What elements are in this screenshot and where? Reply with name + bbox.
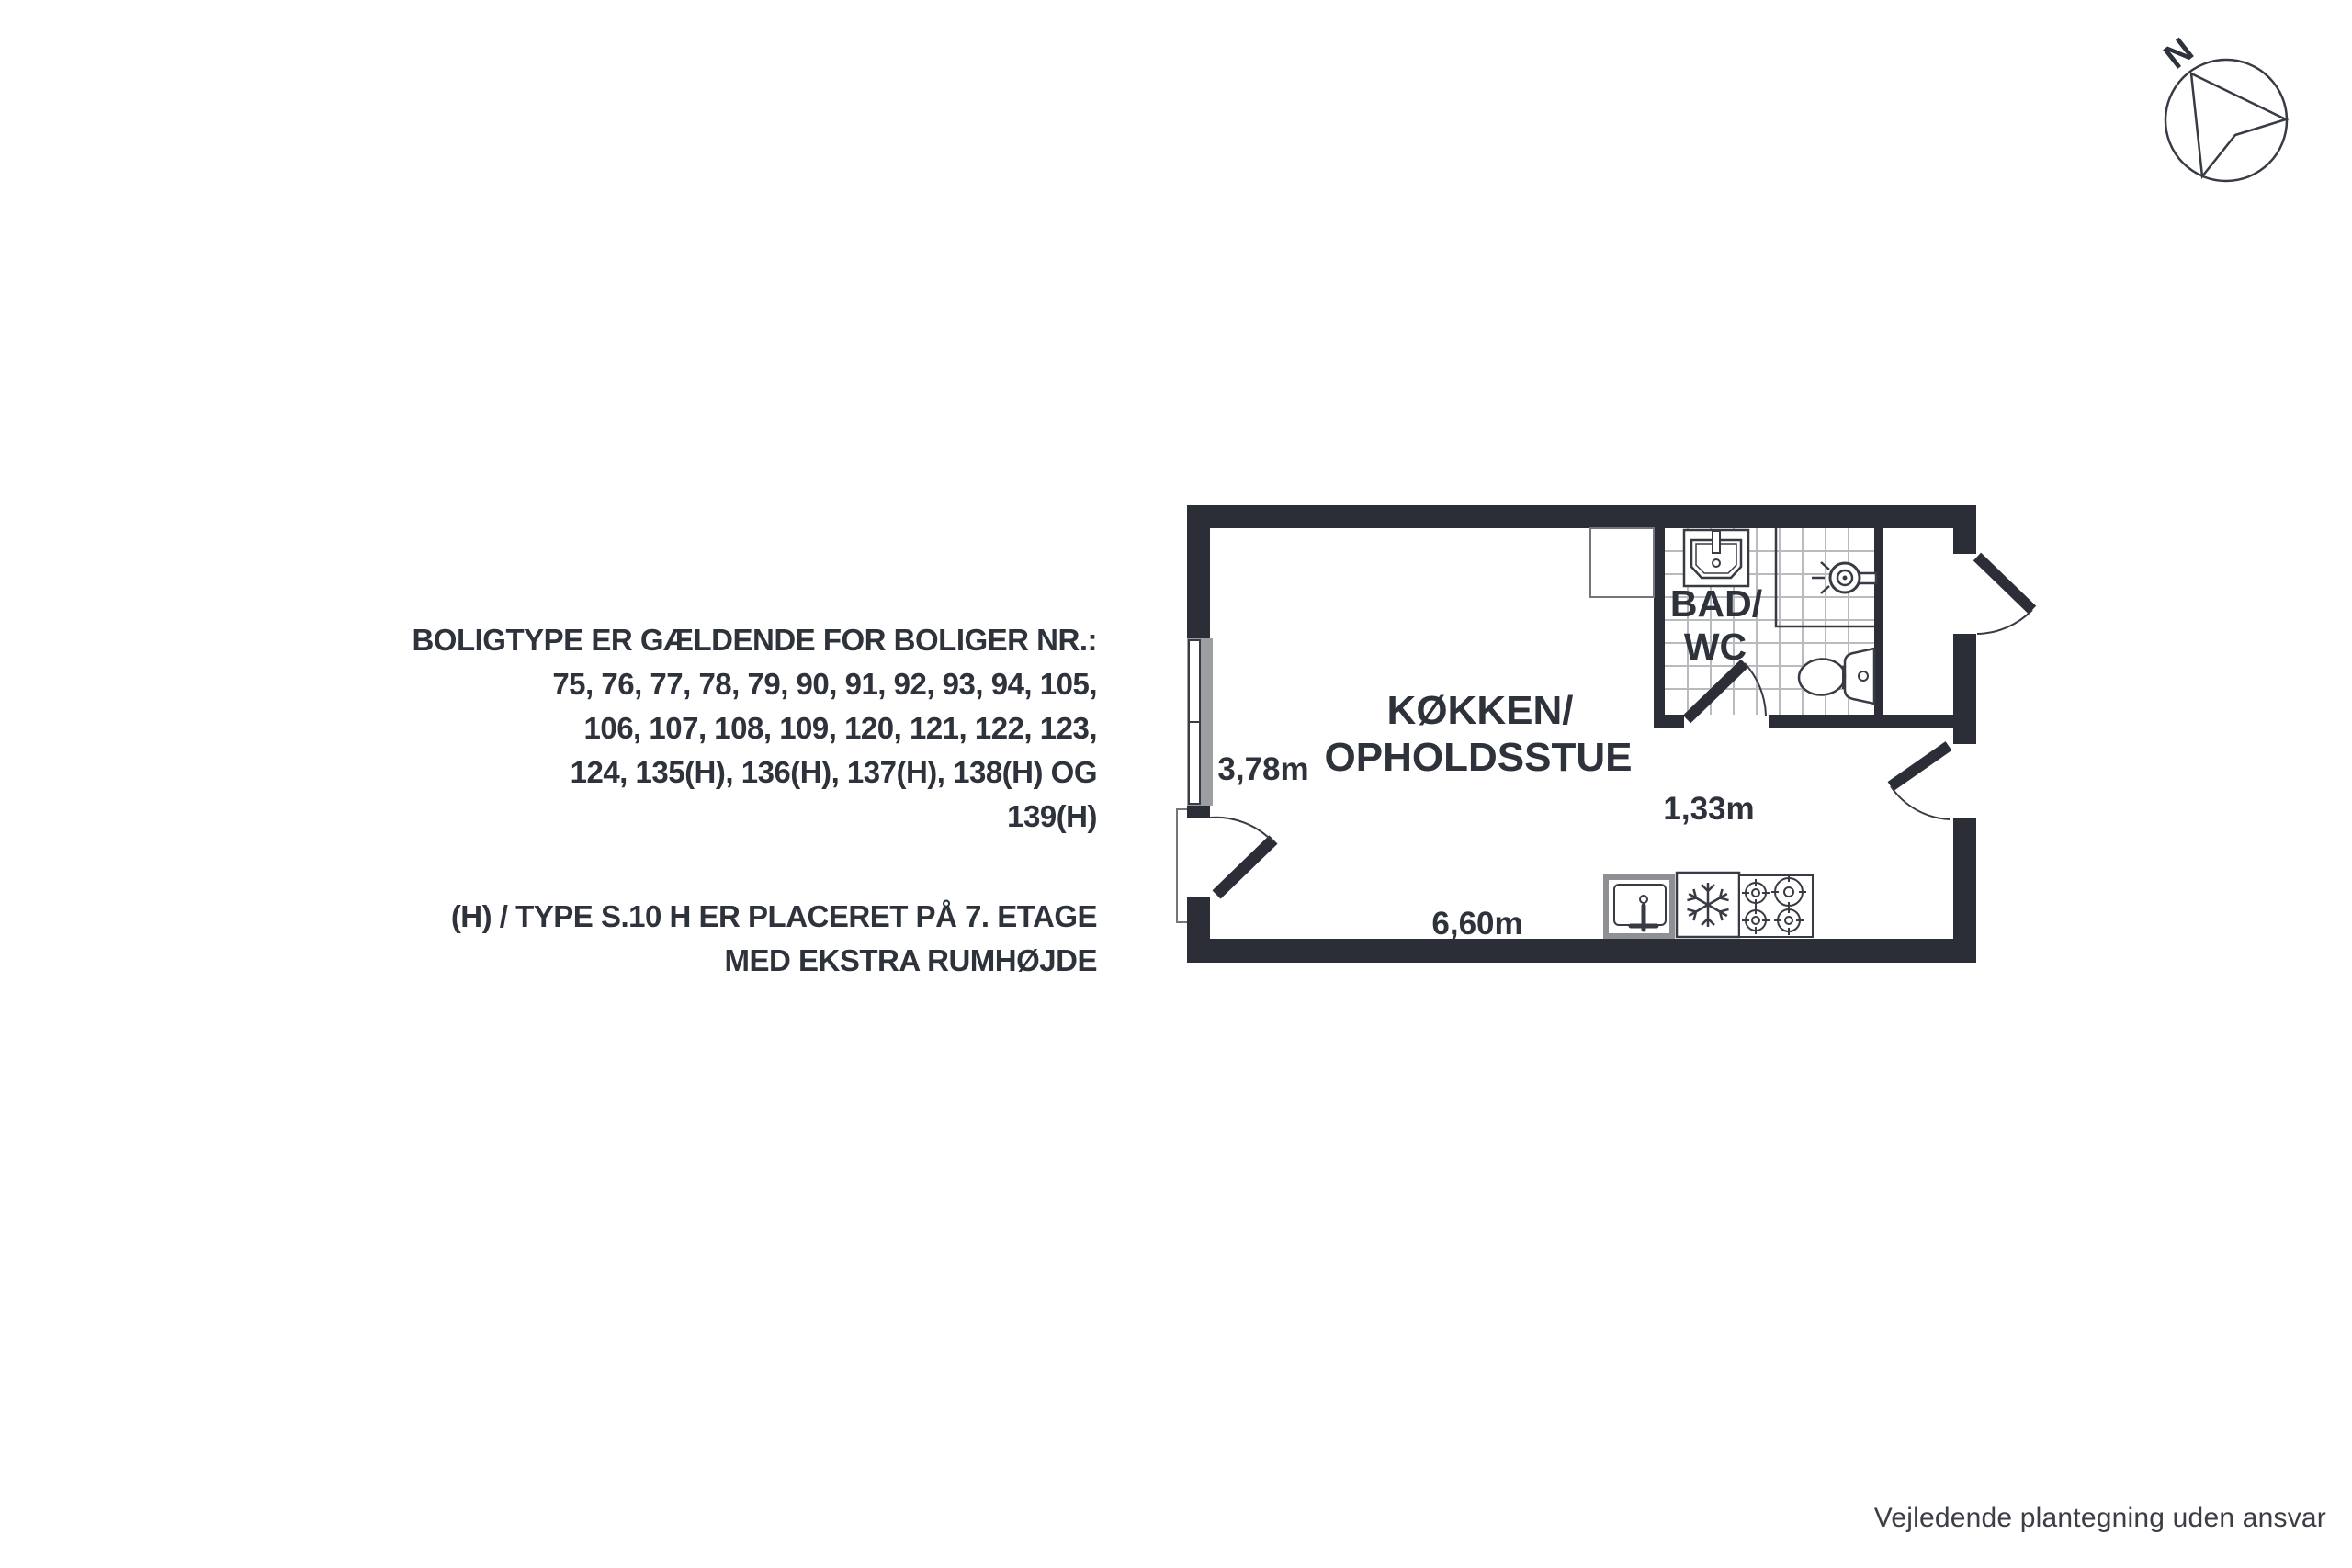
- wall-left-upper: [1187, 505, 1210, 638]
- window: [1187, 638, 1213, 806]
- bath-wall-bottom-right: [1769, 715, 1953, 728]
- note-line: 139(H): [270, 795, 1097, 839]
- bath-wall-bottom-left: [1654, 715, 1684, 728]
- note-line: 75, 76, 77, 78, 79, 90, 91, 92, 93, 94, …: [270, 662, 1097, 706]
- compass-circle: [2165, 60, 2287, 181]
- door-leaf: [1891, 746, 1949, 786]
- sink-drain: [1640, 896, 1647, 903]
- room-label-kitchen-line2: OPHOLDSSTUE: [1325, 738, 1633, 778]
- note-line: BOLIGTYPE ER GÆLDENDE FOR BOLIGER NR.:: [270, 618, 1097, 662]
- door-swing-arc: [1891, 786, 1950, 819]
- note-line: 124, 135(H), 136(H), 137(H), 138(H) OG: [270, 750, 1097, 795]
- note-applies-to: BOLIGTYPE ER GÆLDENDE FOR BOLIGER NR.: 7…: [270, 618, 1097, 839]
- wall-right-upper: [1953, 505, 1976, 554]
- toilet-icon: [1798, 649, 1874, 704]
- interior-door: [1891, 746, 1950, 819]
- kitchen-sink-icon: [1606, 877, 1672, 936]
- bath-sink-icon: [1684, 530, 1748, 586]
- wall-right-lower: [1953, 818, 1976, 963]
- door-swing-arc: [1210, 818, 1273, 842]
- note-line: MED EKSTRA RUMHØJDE: [270, 939, 1097, 983]
- door-leaf: [1216, 840, 1273, 895]
- note-line: 106, 107, 108, 109, 120, 121, 122, 123,: [270, 706, 1097, 750]
- wall-right-middle: [1953, 634, 1976, 744]
- floor-plan-page: N BOLIGTYPE ER GÆLDENDE FOR BOLIGER NR.:…: [0, 0, 2352, 1568]
- wall-bottom: [1187, 939, 1976, 963]
- toilet-flush-button: [1859, 671, 1868, 681]
- note-line: (H) / TYPE S.10 H ER PLACERET PÅ 7. ETAG…: [270, 895, 1097, 939]
- entry-door: [1977, 557, 2032, 634]
- bathroom-door: [1687, 663, 1766, 719]
- shower-spray: [1812, 562, 1829, 593]
- stove-icon: [1739, 874, 1813, 937]
- fridge-icon: [1677, 873, 1739, 937]
- footer-disclaimer: Vejledende plantegning uden ansvar: [1874, 1503, 2326, 1534]
- toilet-bowl: [1798, 658, 1847, 696]
- dimension-room-width: 3,78m: [1217, 753, 1308, 785]
- room-label-bath-line1: BAD/: [1670, 585, 1762, 623]
- wall-top: [1187, 505, 1976, 528]
- door-threshold: [1177, 809, 1187, 922]
- room-label-kitchen-line1: KØKKEN/: [1387, 691, 1574, 731]
- door-leaf: [1977, 557, 2032, 610]
- sink-basin: [1614, 885, 1666, 925]
- bath-wall-left: [1654, 528, 1665, 728]
- room-label-bath-line2: WC: [1684, 628, 1747, 666]
- wall-left-stub: [1187, 806, 1210, 818]
- shower-head-dot: [1843, 576, 1848, 581]
- door-leaf: [1687, 663, 1745, 719]
- compass-icon: [2165, 60, 2287, 181]
- dimension-room-length: 6,60m: [1431, 908, 1522, 940]
- bath-wall-right: [1874, 528, 1883, 728]
- dimension-bath-width: 1,33m: [1663, 793, 1754, 825]
- door-swing-arc: [1977, 610, 2032, 634]
- note-placement: (H) / TYPE S.10 H ER PLACERET PÅ 7. ETAG…: [270, 895, 1097, 983]
- wardrobe: [1590, 528, 1654, 597]
